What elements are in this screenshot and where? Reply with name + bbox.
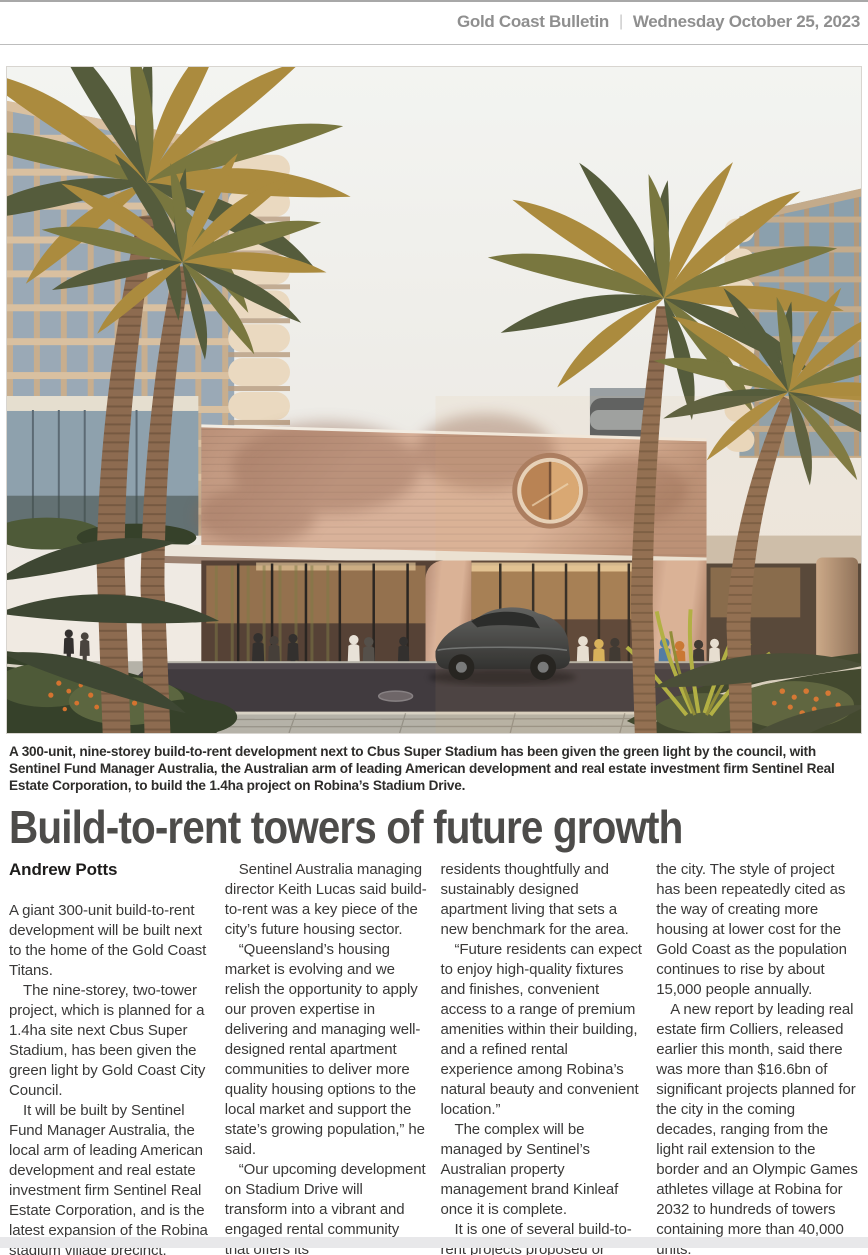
photo-illustration	[7, 67, 861, 733]
article-paragraph: residents thoughtfully and sustainably d…	[441, 860, 644, 940]
article-photo	[6, 66, 862, 734]
photo-caption: A 300-unit, nine-storey build-to-rent de…	[0, 734, 868, 794]
headline: Build-to-rent towers of future growth	[9, 803, 765, 851]
article-paragraph: It will be built by Sentinel Fund Manage…	[9, 1101, 212, 1255]
article-paragraph: A new report by leading real estate firm…	[656, 1000, 859, 1255]
issue-date: Wednesday October 25, 2023	[633, 12, 860, 32]
article-paragraph: “Queensland’s housing market is evolving…	[225, 940, 428, 1160]
masthead: Gold Coast Bulletin | Wednesday October …	[0, 0, 868, 45]
article-paragraph: The complex will be managed by Sentinel’…	[441, 1120, 644, 1220]
newspaper-page: Gold Coast Bulletin | Wednesday October …	[0, 0, 868, 1255]
warm-light-overlay	[435, 396, 861, 733]
bottom-bar	[0, 1237, 868, 1248]
article-column: residents thoughtfully and sustainably d…	[441, 860, 644, 1255]
article-columns: Andrew PottsA giant 300-unit build-to-re…	[0, 860, 868, 1255]
article-column: Sentinel Australia managing director Kei…	[225, 860, 428, 1255]
article-paragraph: the city. The style of project has been …	[656, 860, 859, 1000]
byline: Andrew Potts	[9, 860, 212, 880]
publication-name: Gold Coast Bulletin	[457, 12, 609, 32]
article-paragraph: “Future residents can expect to enjoy hi…	[441, 940, 644, 1120]
article-paragraph: A giant 300-unit build-to-rent developme…	[9, 901, 212, 981]
paving-inlay	[379, 691, 413, 701]
article-paragraph: Sentinel Australia managing director Kei…	[225, 860, 428, 940]
article-paragraph: The nine-storey, two-tower project, whic…	[9, 981, 212, 1101]
article-column: Andrew PottsA giant 300-unit build-to-re…	[9, 860, 212, 1255]
masthead-divider: |	[619, 13, 623, 31]
article-column: the city. The style of project has been …	[656, 860, 859, 1255]
